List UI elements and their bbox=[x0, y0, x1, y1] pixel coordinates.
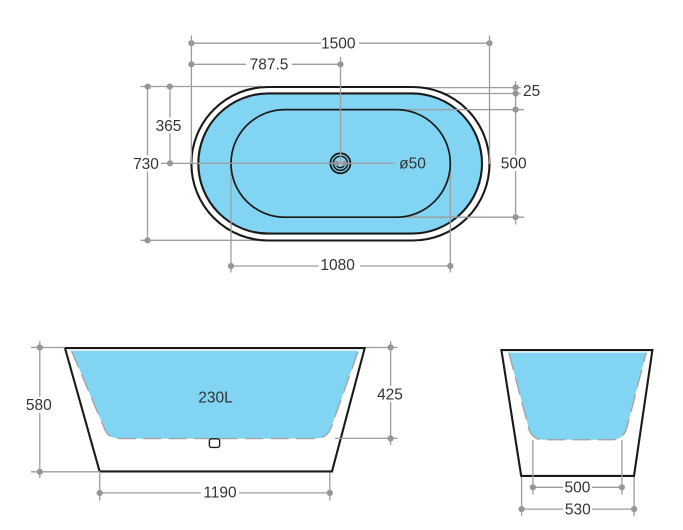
svg-text:787.5: 787.5 bbox=[250, 57, 289, 74]
svg-text:530: 530 bbox=[565, 502, 591, 519]
svg-text:500: 500 bbox=[501, 156, 527, 173]
svg-text:1500: 1500 bbox=[321, 36, 356, 53]
svg-text:730: 730 bbox=[133, 156, 159, 173]
svg-text:580: 580 bbox=[26, 397, 52, 414]
svg-text:365: 365 bbox=[156, 118, 182, 135]
svg-text:230L: 230L bbox=[198, 390, 233, 407]
svg-text:500: 500 bbox=[564, 480, 590, 497]
svg-text:25: 25 bbox=[523, 83, 540, 100]
svg-text:1080: 1080 bbox=[320, 257, 355, 274]
svg-text:ø50: ø50 bbox=[399, 156, 426, 173]
svg-text:425: 425 bbox=[377, 386, 403, 403]
svg-text:1190: 1190 bbox=[203, 484, 237, 501]
